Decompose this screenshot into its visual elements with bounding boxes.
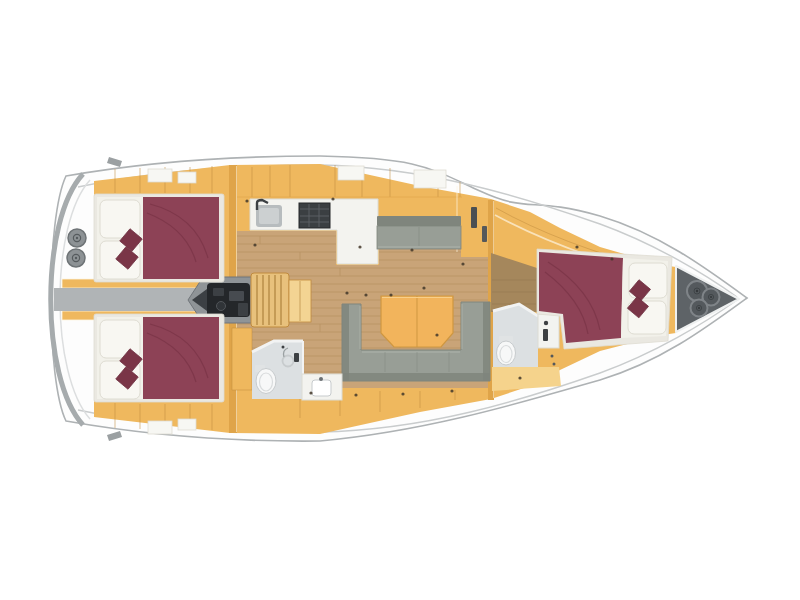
aft-cabin-starboard (94, 314, 224, 402)
galley-stove (299, 203, 330, 228)
yacht-floorplan-page (0, 0, 800, 600)
aft-head-cabinet (232, 328, 252, 390)
stern-winch-2 (67, 249, 85, 267)
companionway-steps (251, 273, 311, 327)
anchor-hatch-3 (691, 300, 708, 317)
yacht-floorplan (0, 0, 800, 600)
bedspread (143, 317, 219, 399)
salon-table (381, 296, 453, 347)
shower-mixer (294, 353, 299, 362)
stern-winch-1 (68, 229, 86, 247)
aft-cabin-port (94, 194, 224, 282)
aft-head-washbasin (302, 374, 342, 400)
cabinet-slot (482, 226, 487, 242)
chaise-bench (377, 216, 461, 249)
forward-head (492, 304, 561, 391)
mast-slot (471, 207, 477, 228)
forward-head-toilet (497, 336, 516, 365)
bedspread (143, 197, 219, 279)
shower-column (538, 314, 559, 348)
